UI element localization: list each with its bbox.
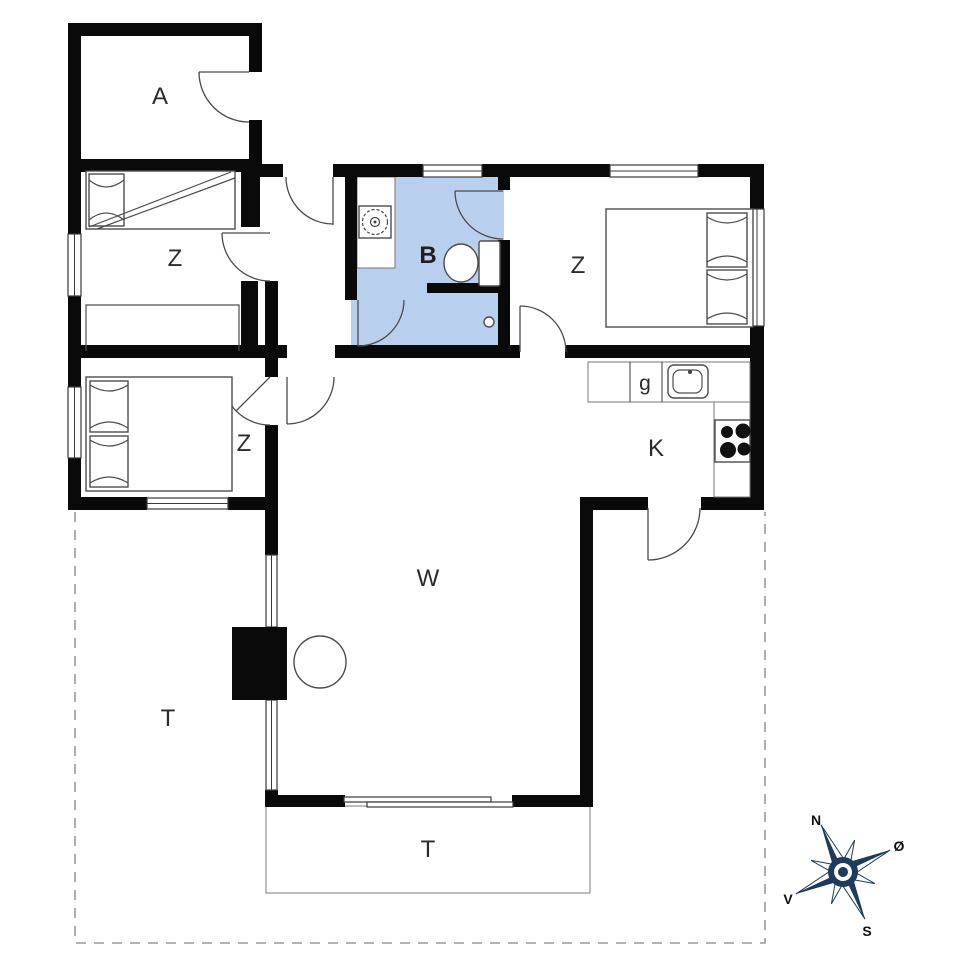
label-cupboard: g — [639, 372, 651, 395]
shower-drain — [484, 317, 494, 327]
window-living-west-upper — [266, 555, 277, 627]
window-bedroom-east-north — [610, 165, 698, 177]
label-terrace-south: T — [421, 836, 436, 863]
label-bedroom-sw: Z — [237, 430, 252, 457]
front-door — [286, 177, 333, 225]
window-bedroom-sw-south — [147, 498, 228, 509]
washing-machine — [359, 206, 391, 238]
label-kitchen: K — [648, 435, 664, 462]
annex-door — [199, 72, 249, 122]
hall-living-door — [287, 377, 334, 424]
wood-stove — [232, 627, 287, 700]
bedroom-nw-furniture — [86, 171, 239, 351]
label-annex: A — [152, 83, 168, 110]
compass-east-label: Ø — [894, 838, 905, 854]
compass-star — [774, 803, 912, 941]
compass-north-label: N — [811, 812, 821, 828]
compass-south-label: S — [862, 923, 871, 939]
bedroom-east-furniture — [606, 209, 753, 327]
floorplan-page: A Z Z Z B g K W T T N Ø S — [0, 0, 960, 971]
compass-rose: N Ø S V — [774, 803, 912, 941]
floorplan-canvas: A Z Z Z B g K W T T N Ø S — [0, 0, 960, 971]
window-bedroom-sw-west — [68, 387, 81, 458]
stove-burners — [715, 420, 751, 462]
window-bathroom-north — [423, 165, 482, 177]
bedroom-sw-furniture — [86, 377, 232, 491]
round-table — [294, 636, 346, 688]
kitchen-sink — [668, 365, 708, 398]
window-bedroom-nw-west — [68, 234, 81, 296]
label-bathroom: B — [419, 242, 436, 269]
bunk-bed-pillow — [89, 174, 124, 226]
label-living-room: W — [417, 565, 440, 592]
label-bedroom-east: Z — [571, 252, 586, 279]
bedroom-east-door — [520, 306, 566, 352]
bedroom-nw-door — [222, 233, 270, 281]
label-bedroom-nw: Z — [168, 245, 183, 272]
window-living-west-lower — [266, 700, 277, 790]
compass-west-label: V — [783, 891, 793, 907]
sliding-door-living-south — [344, 797, 513, 807]
living-room-fixtures — [232, 627, 346, 700]
kitchen-terrace-door — [648, 508, 700, 560]
kitchen-fixtures — [588, 362, 751, 497]
bed-nw-lower — [86, 305, 239, 351]
label-terrace-west: T — [161, 705, 176, 732]
